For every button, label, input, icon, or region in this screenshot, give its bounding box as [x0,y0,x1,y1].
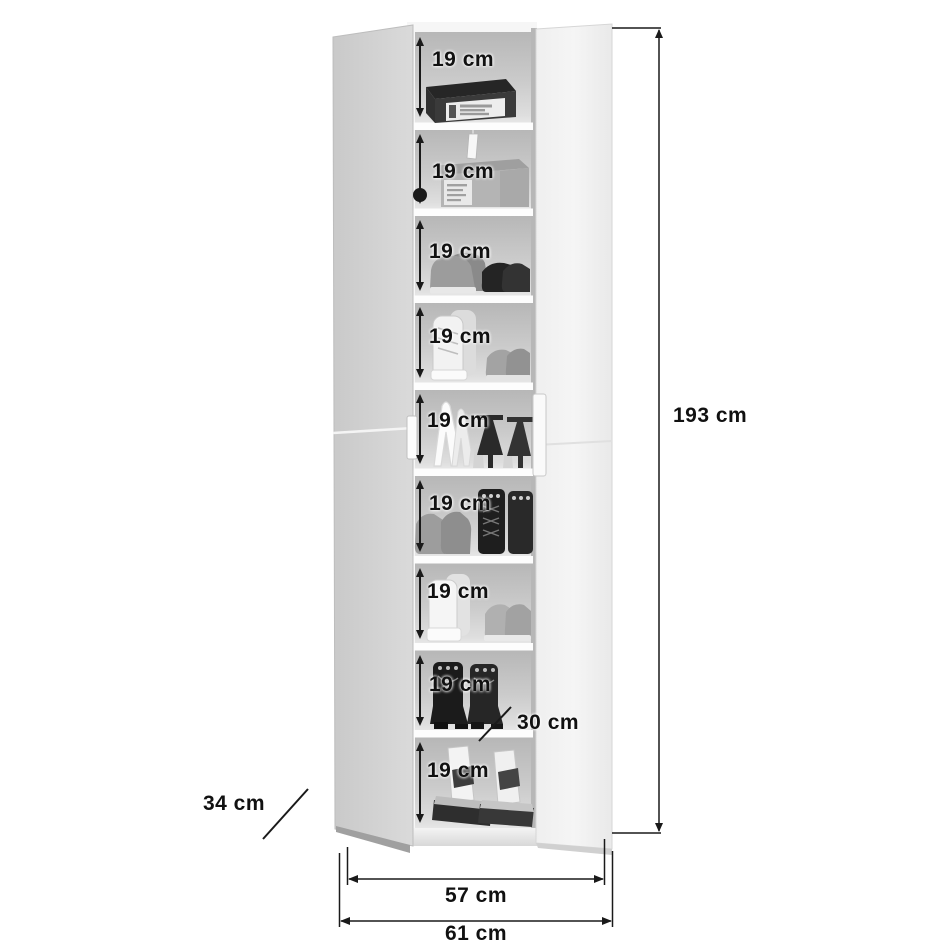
boot-foot [430,706,468,724]
left-door-handle [407,416,417,459]
leader-line [263,789,308,839]
compartment-label-7: 19 cm [427,580,489,604]
arrowhead-down [655,823,663,832]
stud [526,496,530,500]
label-line [460,113,489,115]
label-line [447,184,467,186]
right-door-handle [533,394,546,476]
shelf-board [413,556,533,564]
arrow-dot [413,188,427,202]
boot-heel [434,722,448,729]
shelf-depth-label: 30 cm [517,711,579,735]
stud [446,666,450,670]
compartment-label-2: 19 cm [432,160,494,184]
label-line [460,109,485,111]
compartment-label-6: 19 cm [429,492,491,516]
bottom-board [407,828,537,846]
suede-shoe-right [441,512,471,554]
compartment-label-1: 19 cm [432,48,494,72]
label-line [447,199,461,201]
slipon-sole [486,375,531,381]
depth-leader [263,789,308,839]
stud [483,668,487,672]
stud [512,496,516,500]
shelf-board [413,730,533,738]
boot-right [508,491,533,554]
depth-label: 34 cm [180,792,265,816]
pump-top-bar [507,417,533,422]
boot-studs [438,666,458,670]
label-line [447,189,463,191]
compartment-label-4: 19 cm [429,325,491,349]
boot-heel [471,722,484,729]
product-dimension-diagram: 19 cm 19 cm 19 cm 19 cm 19 cm 19 cm 19 c… [0,0,940,940]
trainer-sole [484,635,531,641]
left-door-panel [333,25,413,846]
left-door [333,25,417,853]
stud [491,668,495,672]
overall-height-label: 193 cm [673,404,747,428]
boot-studs [475,668,495,672]
compartment-label-3: 19 cm [429,240,491,264]
hightop-sole [431,370,467,380]
box-front-shade [500,168,529,207]
shelf-board [413,643,533,651]
arrowhead-up [655,29,663,38]
stud [475,668,479,672]
total-width-label: 61 cm [416,922,536,940]
boot-toe-sole [455,724,468,729]
shelf-board [413,296,533,304]
stud [519,496,523,500]
sneaker-sole [430,287,476,294]
shelf-board [413,383,533,391]
compartment-label-8: 19 cm [429,673,491,697]
arrowhead-right [602,917,612,925]
front-width-label: 57 cm [416,884,536,908]
trainer-right [505,604,531,640]
compartment-label-5: 19 cm [427,409,489,433]
shelf-board [413,209,533,217]
wedge-sole [427,628,461,641]
pump-heel [488,455,493,468]
shelf-board [413,123,533,131]
hang-tag [467,134,478,159]
label-line [460,105,492,108]
arrowhead-left [340,917,350,925]
stud [438,666,442,670]
label-line [447,194,466,196]
shelf-board [413,469,533,477]
stud [454,666,458,670]
stud [496,494,500,498]
arrowhead-left [348,875,358,883]
cabinet-drawing [0,0,940,940]
top-board [407,22,537,32]
pump-heel [518,456,523,468]
box-barcode [449,105,456,118]
compartment-label-9: 19 cm [427,759,489,783]
arrowhead-right [594,875,604,883]
overall-height-dimension [612,28,663,833]
